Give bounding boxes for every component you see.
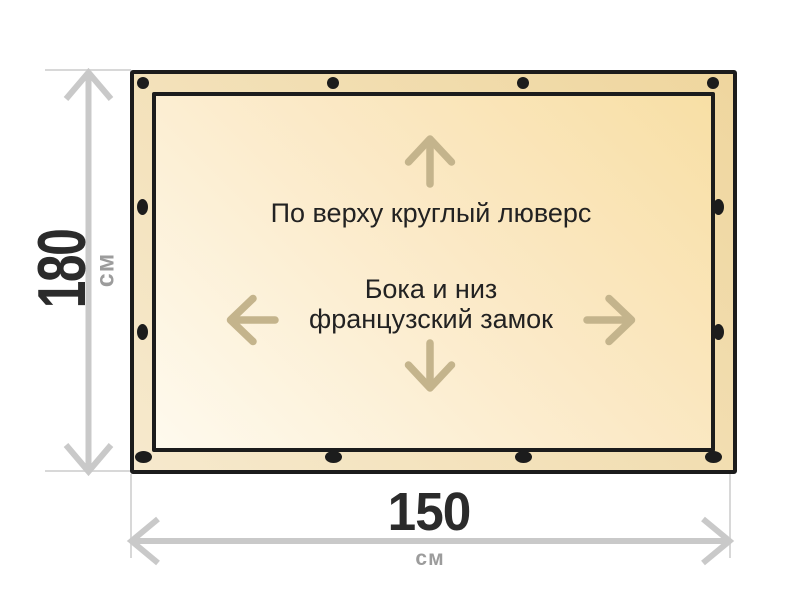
grommet-dot: [713, 324, 724, 340]
grommet-dot: [327, 77, 339, 89]
grommet-dot: [517, 77, 529, 89]
sides-bottom-lock-note-line2: французский замок: [231, 304, 631, 334]
width-value-label: 150: [388, 481, 471, 543]
height-unit-label: см: [92, 253, 121, 287]
top-grommet-note: По верху круглый люверс: [231, 198, 631, 228]
grommet-dot: [707, 77, 719, 89]
down-arrow-icon: [405, 338, 455, 396]
product-diagram: По верху круглый люверс Бока и низ франц…: [0, 0, 800, 600]
grommet-dot: [137, 324, 148, 340]
grommet-dot: [135, 451, 152, 463]
grommet-dot: [137, 77, 149, 89]
grommet-dot: [325, 451, 342, 463]
grommet-dot: [137, 199, 148, 215]
up-arrow-icon: [405, 131, 455, 189]
width-unit-label: см: [415, 547, 444, 571]
grommet-dot: [713, 199, 724, 215]
grommet-dot: [515, 451, 532, 463]
sides-bottom-lock-note: Бока и низ французский замок: [231, 274, 631, 334]
height-value-label: 180: [23, 230, 101, 308]
sides-bottom-lock-note-line1: Бока и низ: [231, 274, 631, 304]
grommet-dot: [705, 451, 722, 463]
